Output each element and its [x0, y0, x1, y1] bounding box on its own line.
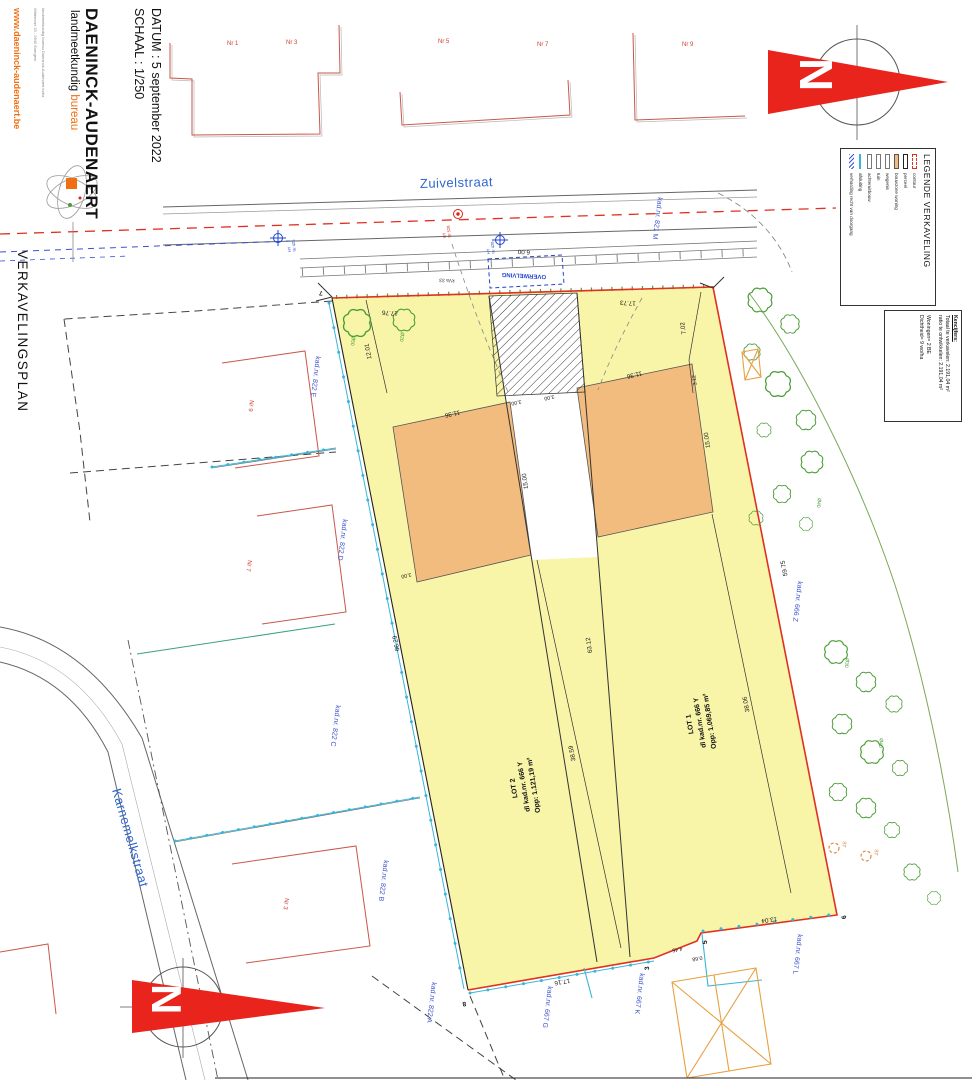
house-nr1-3-outline — [170, 25, 340, 135]
legend-item-label: bouwzone woning — [894, 173, 899, 210]
legend-swatch-achteruitbouw — [867, 154, 872, 169]
legend-item-label: wegenis — [885, 173, 890, 190]
legend-row: afsluiting — [856, 154, 865, 300]
tree-diameter-label: Ø40 — [877, 738, 884, 748]
point-label: 8 — [461, 1000, 466, 1008]
north-arrow-topright: N — [768, 25, 948, 140]
cadastral-label: kad.nr. 822 D — [336, 519, 348, 561]
cadastral-label: kad.nr. 667 L — [791, 934, 803, 975]
zuivelstraat-road — [0, 190, 836, 277]
legend-swatch-contour — [912, 154, 917, 169]
point-label: 6 — [841, 915, 848, 920]
house-w7-outline — [257, 505, 346, 624]
north-letter: N — [790, 58, 842, 91]
hydrant-label: HY Nr 528 — [440, 225, 451, 239]
point-label: 7 — [319, 289, 323, 296]
plan-title: VERKAVELINGSPLAN — [15, 250, 30, 413]
legend-item-label: tuin — [876, 173, 881, 180]
legend-item-label: verharding recht van doorgang — [849, 173, 854, 236]
legend-item-label: perceel — [903, 173, 908, 188]
north-arrow-bottomleft: N — [120, 958, 325, 1058]
dim-label: 6.00 — [517, 248, 530, 256]
utility-line-blue — [0, 241, 290, 252]
cadastral-label: kad.nr. 667 G — [541, 986, 553, 1029]
st-marker-label: ST — [840, 841, 847, 848]
dim-label: 17.73 — [619, 299, 636, 307]
tree-diameter-label: Ø30 — [843, 658, 850, 668]
corner-marker-7 — [316, 283, 332, 301]
cadastral-label: kad.nr. 821 M — [651, 197, 663, 240]
overwelving-label: OVERWELVING — [501, 271, 546, 279]
house-number: Nr 7 — [245, 560, 252, 573]
legend-swatch-perceel — [903, 154, 908, 169]
road-axis-red-dashed — [0, 208, 836, 234]
legend-title: LEGENDE VERKAVELING — [922, 154, 932, 300]
legend-item-label: afsluiting — [858, 173, 863, 191]
key-figures-box: Kencijfers: Totaal te verkavelen: 2.191,… — [884, 310, 962, 422]
cadastral-label: kad.nr. 822 B — [377, 860, 389, 902]
logo-orange-square — [66, 178, 77, 189]
site-plan-drawing: Nr 1 Nr 3 Nr 5 Nr 7 Nr 9 Nr 9 Nr 7 Nr 3 — [0, 0, 972, 1080]
point-label: 3 — [644, 966, 651, 971]
legend-swatch-tuin — [876, 154, 881, 169]
key-figures-line: Dichtheid= 9 wo/ha — [916, 315, 924, 417]
legend-item-label: contour — [912, 173, 917, 188]
cadastral-label: kad.nr. 822 E — [309, 356, 321, 398]
dim-label: 59.75 — [779, 559, 789, 576]
kva-label: kVa 33 — [439, 277, 455, 284]
scale-text: SCHAAL : 1/250 — [132, 8, 146, 99]
legend-row: verharding recht van doorgang — [847, 154, 856, 300]
house-number: Nr 9 — [682, 42, 694, 48]
house-corner-outline — [0, 944, 56, 1014]
verkavelingsplan-canvas: Nr 1 Nr 3 Nr 5 Nr 7 Nr 9 Nr 9 Nr 7 Nr 3 — [0, 0, 972, 1080]
key-figures-line: Woningen= 2 BE — [924, 315, 932, 417]
legend-row: tuin — [874, 154, 883, 300]
neighbor-houses-west — [0, 351, 370, 1014]
house-number: Nr 7 — [537, 42, 549, 48]
neighbor-houses-north: Nr 1 Nr 3 Nr 5 Nr 7 Nr 9 — [170, 25, 747, 137]
cadastral-label: kad.nr. 667 K — [633, 973, 645, 1015]
dim-label: 0.68 — [692, 954, 703, 962]
tree-diameter-label: Ø50 — [349, 336, 356, 346]
legend-swatch-afsluiting — [860, 154, 862, 169]
legend-swatch-verharding — [849, 154, 854, 169]
house-number: Nr 3 — [286, 40, 298, 46]
legend-swatch-wegenis — [885, 154, 890, 169]
house-number: Nr 3 — [282, 898, 289, 911]
st-marker-label: ST — [872, 849, 879, 856]
key-figures-line: Totaal te verkavelen: 2.191,04 m² — [943, 315, 951, 417]
utilities: HY Nr 425 HY Nr 528 HY Nr 428 — [270, 210, 508, 255]
legend-swatch-bouwzone — [894, 154, 899, 169]
legend-row: perceel — [901, 154, 910, 300]
north-letter: N — [143, 984, 190, 1014]
house-number: Nr 9 — [247, 400, 254, 413]
firm-name: DAENINCK-AUDENAERT — [81, 8, 101, 219]
house-nr5-7-outline — [400, 80, 570, 125]
cadastral-label: kad.nr. 822 A — [425, 982, 437, 1024]
street-name-zuivelstraat: Zuivelstraat — [420, 174, 494, 191]
legend-item-label: achteruitbouw — [867, 173, 872, 202]
overwelving-box — [488, 255, 564, 288]
legend-box: LEGENDE VERKAVELING contour perceel bouw… — [840, 148, 936, 306]
firm-address-line2: Wittemoer 33 - 9940 Evergem — [33, 8, 38, 61]
date-text: DATUM : 5 september 2022 — [149, 8, 163, 163]
legend-row: bouwzone woning — [892, 154, 901, 300]
key-figures-line: ratio te ontwikkelen: 2.191,04 m² — [935, 315, 943, 417]
key-figures-heading: Kencijfers: — [950, 315, 958, 417]
hydrant-label: HY Nr 428 — [484, 241, 495, 255]
house-w3-outline — [232, 846, 370, 963]
firm-address-line1: landmeetkundig bureau Daeninck-Audenaert… — [41, 8, 46, 97]
svg-text:Nr 528: Nr 528 — [445, 225, 452, 238]
firm-subtitle: landmeetkundig bureau — [68, 10, 80, 130]
house-number: Nr 1 — [227, 41, 239, 47]
dim-label: 17.76 — [381, 309, 398, 317]
tree-diameter-label: Ø40 — [815, 498, 822, 508]
svg-text:Nr 428: Nr 428 — [489, 241, 496, 254]
house-w9-outline — [222, 351, 319, 468]
tree-diameter-label: Ø20 — [398, 332, 405, 342]
firm-website: www.daeninck-audenaert.be — [12, 8, 22, 129]
legend-row: wegenis — [883, 154, 892, 300]
legend-row: achteruitbouw — [865, 154, 874, 300]
house-number: Nr 5 — [438, 39, 450, 45]
legend-row: contour — [910, 154, 919, 300]
cadastral-label: kad.nr. 822 C — [329, 705, 341, 747]
cadastral-label: kad.nr. 666 Z — [791, 581, 803, 623]
